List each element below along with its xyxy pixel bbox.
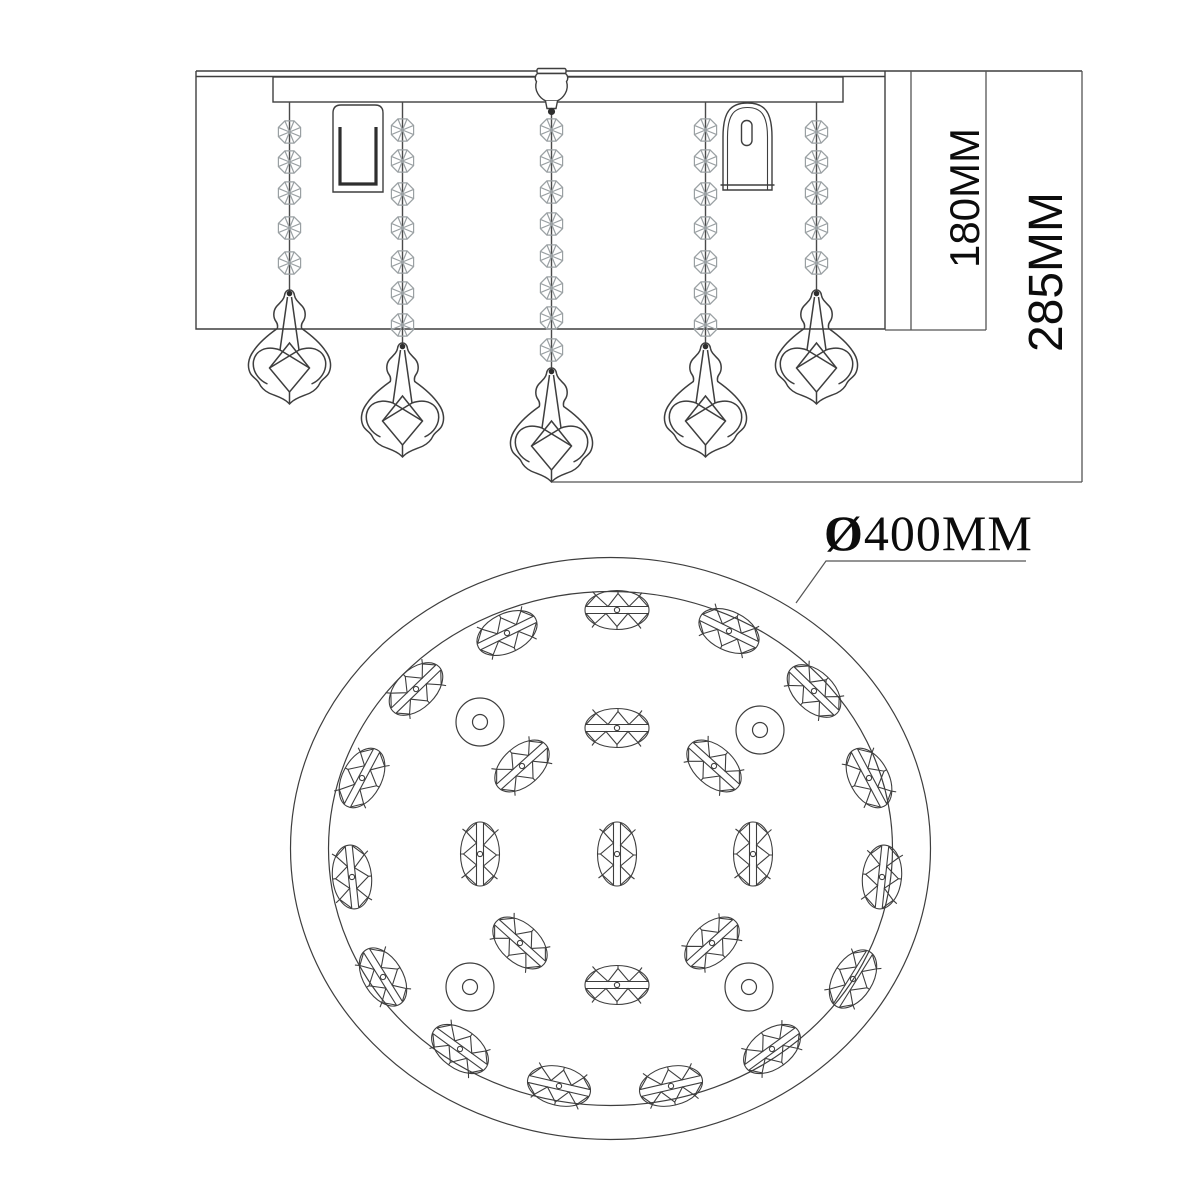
diameter-value: 400MM xyxy=(864,505,1033,561)
screw-washer xyxy=(725,963,773,1011)
dimension-label-height-285: 285MM xyxy=(1023,192,1071,352)
center-finial xyxy=(535,69,567,116)
pendant-drop xyxy=(248,290,330,404)
technical-drawing: 180MM 285MM Ø400MM xyxy=(0,0,1200,1200)
faceted-crystal xyxy=(461,822,500,886)
diameter-symbol: Ø xyxy=(824,505,864,561)
diameter-leader-line xyxy=(796,561,1026,603)
faceted-crystal xyxy=(585,966,649,1005)
crystal-strand-2 xyxy=(361,102,443,457)
faceted-crystal xyxy=(329,843,374,911)
faceted-crystal xyxy=(777,655,850,728)
faceted-crystal xyxy=(859,843,904,911)
pendant-drop xyxy=(361,343,443,457)
screw-washer xyxy=(446,963,494,1011)
lamp-rim-inner xyxy=(329,592,893,1106)
bulb-filament-slot xyxy=(742,121,753,146)
diagram-canvas xyxy=(0,0,1200,1200)
crystal-strand-5 xyxy=(775,102,857,404)
crystal-strand-1 xyxy=(248,102,330,404)
faceted-crystal xyxy=(598,822,637,886)
faceted-crystal xyxy=(677,730,751,802)
faceted-crystal xyxy=(585,591,649,630)
crystal-strand-3 xyxy=(510,111,592,482)
faceted-crystal xyxy=(837,741,901,816)
faceted-crystal xyxy=(734,822,773,886)
screw-washer xyxy=(456,698,504,746)
faceted-crystal xyxy=(675,907,749,979)
top-view-plan xyxy=(291,558,1027,1140)
dimension-label-height-180: 180MM xyxy=(944,128,986,268)
lamp-socket-left xyxy=(333,105,383,192)
faceted-crystal xyxy=(692,599,767,662)
faceted-crystal xyxy=(585,709,649,748)
dimension-label-diameter: Ø400MM xyxy=(824,508,1033,558)
pendant-drop xyxy=(775,290,857,404)
faceted-crystal xyxy=(485,730,559,802)
screw-washer xyxy=(736,706,784,754)
lamp-rim-outer xyxy=(291,558,931,1140)
faceted-crystal xyxy=(735,1014,810,1083)
pendant-drop xyxy=(510,368,592,482)
lamp-bulb-right xyxy=(721,103,775,190)
faceted-crystal xyxy=(483,907,557,979)
faceted-crystal xyxy=(635,1060,706,1112)
faceted-crystal xyxy=(350,940,417,1015)
faceted-crystal xyxy=(470,601,545,664)
crystal-strand-4 xyxy=(664,102,746,457)
faceted-crystal xyxy=(379,653,452,726)
pendant-drop xyxy=(664,343,746,457)
